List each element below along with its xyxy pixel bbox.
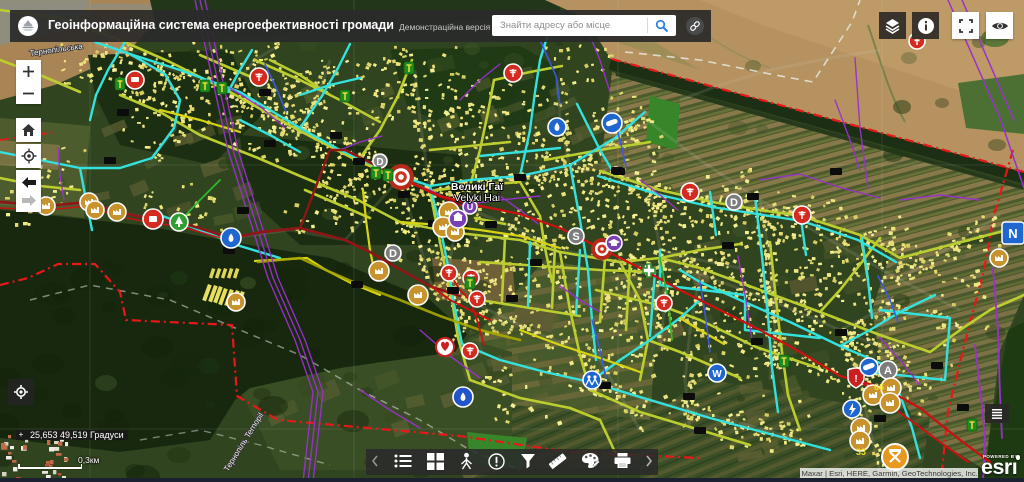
svg-text:D: D [730,197,738,209]
svg-text:D: D [376,157,383,168]
svg-text:66: 66 [874,382,884,392]
svg-text:!: ! [854,374,857,385]
svg-text:S: S [572,231,579,243]
svg-text:W: W [712,369,722,380]
svg-text:Velyki Hai: Velyki Hai [454,192,500,204]
svg-text:A: A [884,365,892,377]
svg-text:33: 33 [856,447,866,457]
svg-text:N: N [1008,226,1017,241]
svg-text:D: D [389,248,397,260]
